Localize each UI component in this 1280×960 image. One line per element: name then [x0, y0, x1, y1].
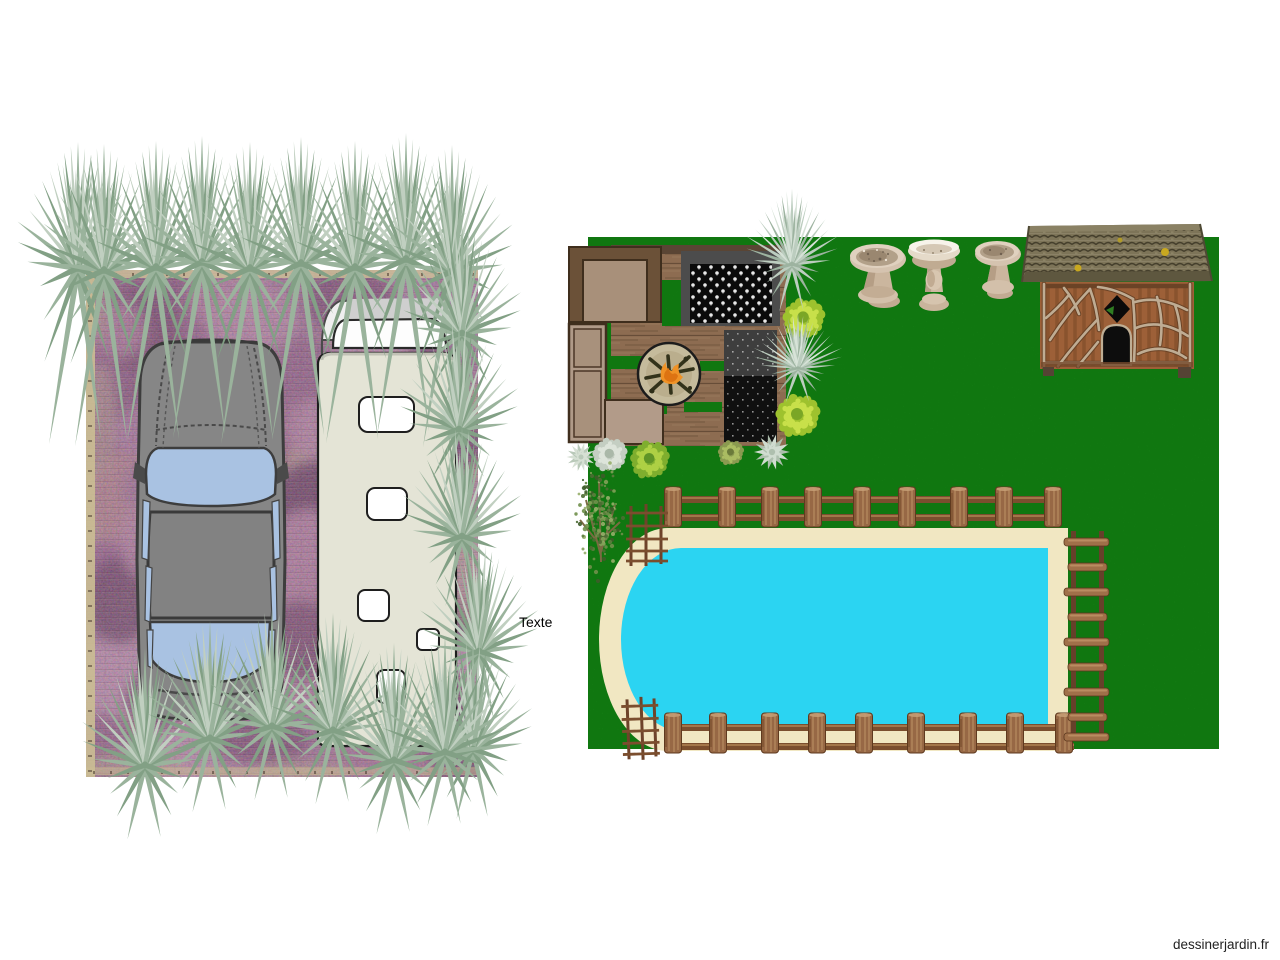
- svg-text:dessinerjardin.fr: dessinerjardin.fr: [1173, 937, 1270, 952]
- svg-text:Texte: Texte: [519, 614, 553, 630]
